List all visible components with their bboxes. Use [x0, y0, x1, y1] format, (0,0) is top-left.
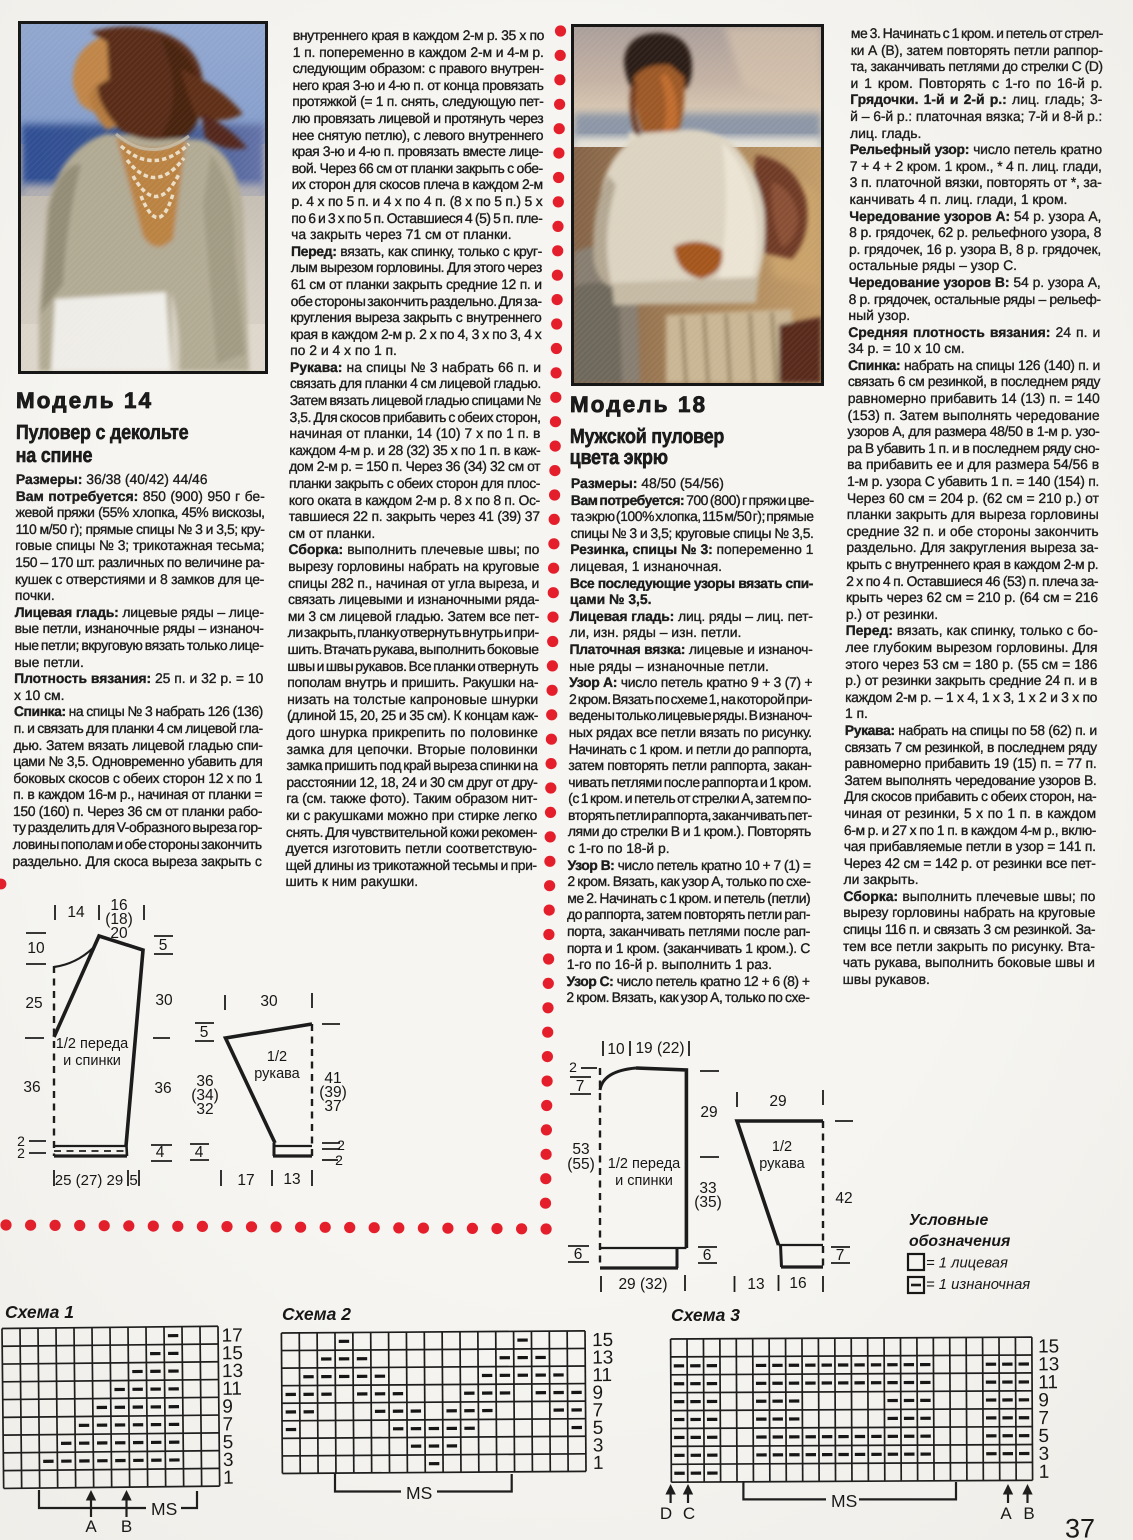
- svg-text:29 (32): 29 (32): [618, 1276, 667, 1293]
- svg-text:6: 6: [703, 1247, 712, 1264]
- svg-text:1: 1: [223, 1468, 234, 1489]
- svg-text:13: 13: [747, 1276, 764, 1293]
- svg-text:7: 7: [836, 1247, 845, 1264]
- svg-text:рукава: рукава: [254, 1066, 300, 1082]
- svg-text:D: D: [660, 1504, 672, 1523]
- svg-text:37: 37: [324, 1098, 341, 1115]
- svg-text:2: 2: [335, 1152, 343, 1168]
- svg-text:36: 36: [154, 1080, 171, 1097]
- svg-text:17: 17: [237, 1172, 254, 1189]
- svg-text:MS: MS: [831, 1491, 857, 1511]
- svg-text:5: 5: [129, 1172, 137, 1189]
- svg-text:25: 25: [25, 995, 42, 1012]
- svg-text:1/2 переда: 1/2 переда: [608, 1156, 681, 1172]
- svg-text:42: 42: [835, 1190, 852, 1207]
- svg-text:29: 29: [769, 1093, 786, 1110]
- svg-text:25 (27) 29: 25 (27) 29: [55, 1172, 123, 1189]
- svg-text:и спинки: и спинки: [615, 1173, 673, 1189]
- svg-text:30: 30: [155, 992, 173, 1009]
- svg-text:B: B: [1023, 1504, 1034, 1523]
- svg-text:MS: MS: [151, 1499, 177, 1519]
- svg-text:14: 14: [67, 904, 85, 921]
- svg-text:1/2: 1/2: [267, 1049, 287, 1065]
- svg-text:Условные: Условные: [909, 1212, 989, 1229]
- svg-text:C: C: [683, 1504, 695, 1523]
- svg-text:19 (22): 19 (22): [635, 1040, 684, 1057]
- svg-text:20: 20: [110, 925, 128, 942]
- svg-text:13: 13: [283, 1171, 300, 1188]
- svg-text:рукава: рукава: [759, 1156, 805, 1172]
- svg-text:2: 2: [17, 1145, 25, 1161]
- svg-text:Схема 3: Схема 3: [671, 1305, 740, 1325]
- svg-text:10: 10: [607, 1041, 625, 1058]
- svg-text:7: 7: [576, 1078, 585, 1095]
- svg-text:29: 29: [700, 1104, 717, 1121]
- svg-text:2: 2: [337, 1137, 345, 1153]
- svg-text:= 1 лицевая: = 1 лицевая: [926, 1256, 1008, 1272]
- svg-text:1/2 переда: 1/2 переда: [56, 1036, 129, 1052]
- svg-text:Схема 1: Схема 1: [5, 1302, 74, 1322]
- svg-text:B: B: [121, 1517, 132, 1536]
- svg-text:A: A: [1000, 1504, 1012, 1523]
- svg-text:4: 4: [195, 1144, 204, 1161]
- svg-text:16: 16: [789, 1275, 806, 1292]
- svg-text:(35): (35): [694, 1194, 722, 1211]
- svg-text:36: 36: [23, 1079, 40, 1096]
- svg-text:A: A: [85, 1517, 97, 1536]
- svg-text:6: 6: [574, 1246, 583, 1263]
- svg-text:4: 4: [156, 1144, 165, 1161]
- svg-text:= 1 изнаночная: = 1 изнаночная: [926, 1277, 1030, 1293]
- svg-text:обозначения: обозначения: [909, 1233, 1011, 1250]
- svg-text:Схема 2: Схема 2: [282, 1304, 351, 1324]
- svg-text:MS: MS: [406, 1483, 432, 1503]
- svg-text:32: 32: [196, 1101, 213, 1118]
- svg-text:1: 1: [1039, 1462, 1050, 1483]
- svg-text:и спинки: и спинки: [63, 1053, 121, 1069]
- svg-text:2: 2: [569, 1059, 577, 1075]
- svg-text:5: 5: [159, 937, 168, 954]
- svg-text:1/2: 1/2: [772, 1139, 792, 1155]
- svg-text:5: 5: [200, 1024, 209, 1041]
- svg-text:30: 30: [260, 993, 278, 1010]
- svg-text:(55): (55): [567, 1156, 595, 1173]
- svg-text:37: 37: [1065, 1514, 1095, 1540]
- svg-text:1: 1: [593, 1453, 604, 1474]
- svg-text:10: 10: [27, 940, 45, 957]
